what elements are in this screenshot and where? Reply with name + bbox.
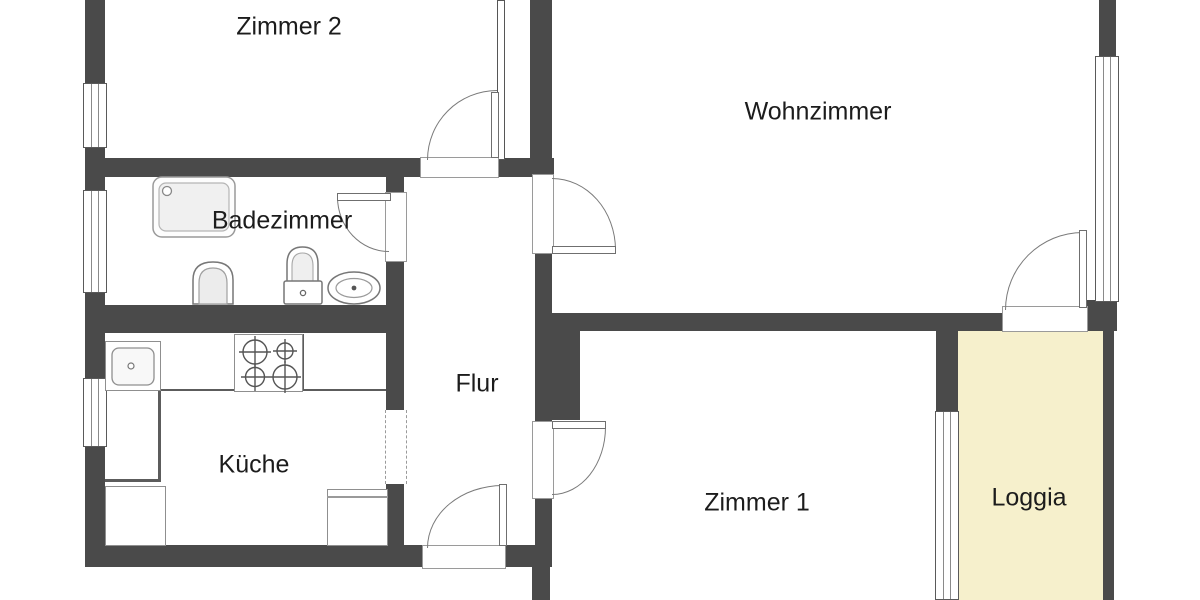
- room-label-zimmer2: Zimmer 2: [236, 13, 342, 42]
- stove-burners: [239, 336, 301, 393]
- floor-plan: Zimmer 2 Wohnzimmer Badezimmer Flur Küch…: [0, 0, 1200, 600]
- room-label-zimmer1: Zimmer 1: [704, 489, 810, 518]
- washbasin-symbol: [328, 272, 380, 304]
- room-label-flur: Flur: [455, 370, 498, 399]
- toilet-symbol: [193, 262, 233, 304]
- wc-cistern-symbol: [284, 247, 322, 304]
- room-label-kueche: Küche: [219, 451, 290, 480]
- kitchen-sink-symbol: [112, 348, 154, 385]
- room-label-badezimmer: Badezimmer: [212, 207, 352, 236]
- room-label-wohnzimmer: Wohnzimmer: [745, 98, 892, 127]
- room-label-loggia: Loggia: [991, 484, 1066, 513]
